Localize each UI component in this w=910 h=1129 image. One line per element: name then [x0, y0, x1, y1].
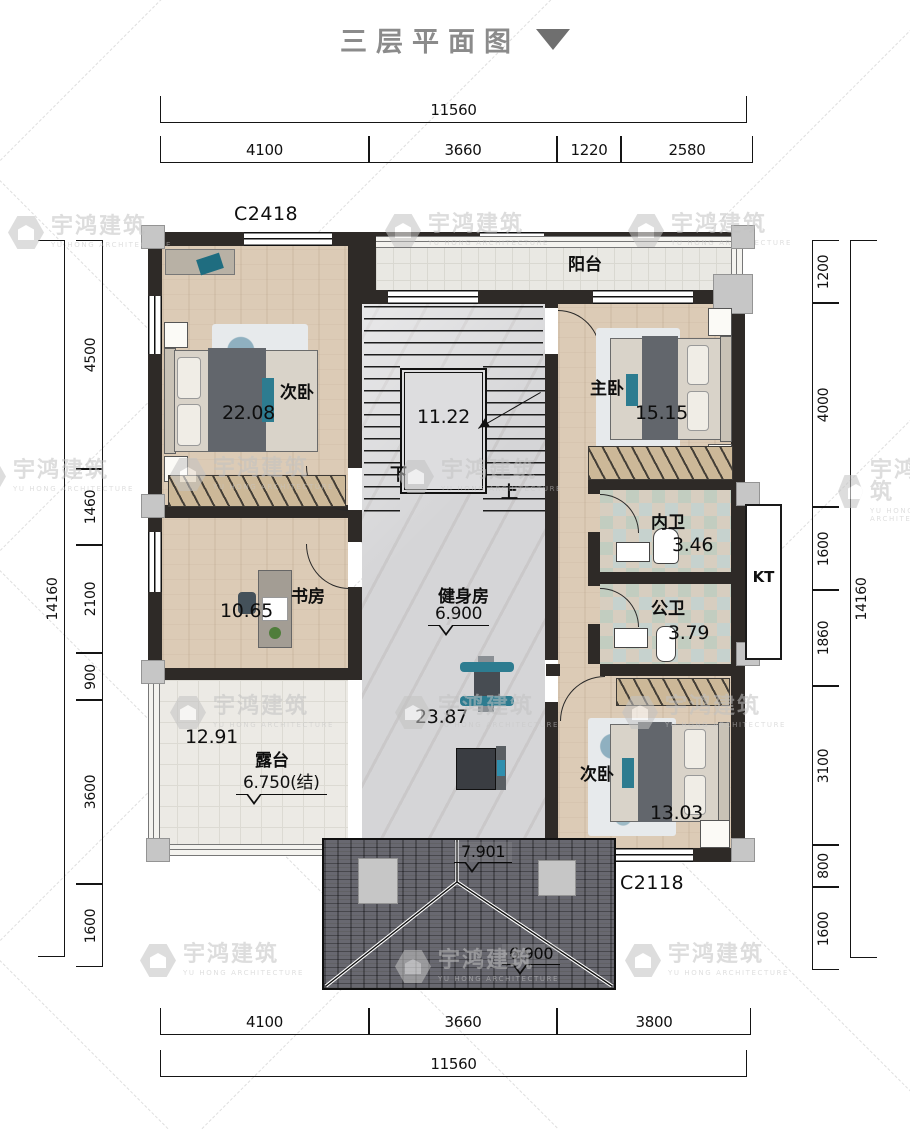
dim-segment: 3660 [369, 136, 557, 163]
wall [348, 510, 362, 542]
wall [348, 290, 388, 304]
balcony-floor [376, 246, 731, 290]
dim-segment: 1600 [812, 507, 839, 590]
column-pad [731, 225, 755, 249]
dim-right-total: 14160 [850, 240, 877, 958]
window [593, 290, 693, 304]
nightstand [708, 308, 732, 336]
bath-inner-name: 内卫 [651, 508, 685, 533]
roof-elevation-lower: 6.900 [502, 944, 560, 983]
bedroom-se-area: 13.03 [650, 802, 703, 824]
dim-segment: 900 [76, 653, 103, 700]
bed-master [610, 336, 730, 440]
dim-segment: 3600 [76, 700, 103, 884]
treadmill [456, 746, 506, 790]
terrace-area: 12.91 [185, 726, 238, 748]
column-pad [731, 838, 755, 862]
dim-segment: 4500 [76, 240, 103, 469]
wardrobe [168, 475, 346, 507]
window-label-c2418: C2418 [234, 203, 298, 225]
wardrobe [616, 678, 730, 706]
dim-segment: 3100 [812, 686, 839, 845]
wall [600, 664, 745, 676]
watermark: 宇鸿建筑YU HONG ARCHITECTURE [0, 460, 134, 493]
chimney-pad [538, 860, 576, 896]
roof-elevation-upper: 7.901 [454, 842, 512, 881]
master-area: 15.15 [635, 402, 688, 424]
wall [588, 532, 600, 586]
dim-right-segments: 1200 4000 1600 1860 3100 800 1600 [812, 240, 839, 970]
bath-inner-area: 3.46 [672, 534, 713, 556]
gym-elevation-marker: 6.900 [428, 604, 489, 644]
wall [588, 624, 600, 664]
watermark: 宇鸿建筑YU HONG ARCHITECTURE [625, 944, 789, 977]
terrace-elevation-marker: 6.750(结) [236, 768, 327, 813]
wall [545, 354, 558, 660]
bedroom-nw-name: 次卧 [280, 378, 314, 403]
dim-segment: 2100 [76, 545, 103, 653]
dim-value: 11560 [161, 101, 746, 119]
bedroom-nw-area: 22.08 [222, 402, 275, 424]
wall [588, 572, 745, 584]
stair-void: 11.22 [400, 368, 487, 494]
wall [478, 290, 558, 304]
dim-segment: 1220 [557, 136, 621, 163]
wardrobe [588, 446, 733, 480]
bedroom-se-name: 次卧 [580, 760, 614, 785]
column-pad [141, 225, 165, 249]
title-text: 三层平面图 [340, 20, 520, 59]
yuhong-logo-icon [140, 944, 176, 977]
window [388, 290, 478, 304]
stair-treads [364, 306, 543, 366]
dim-segment: 4100 [160, 136, 369, 163]
terrace-railing [148, 680, 160, 850]
wall [588, 490, 600, 494]
dim-segment: 1200 [812, 240, 839, 303]
dim-segment: 1600 [76, 884, 103, 967]
dim-segment: 3800 [557, 1008, 751, 1035]
dim-left-total: 14160 [38, 240, 65, 957]
wall [731, 276, 745, 862]
stair-down-label: 下 [390, 460, 407, 485]
window-label-c2118: C2118 [620, 872, 684, 894]
dim-top-segments: 4100 3660 1220 2580 [160, 136, 753, 163]
wall [545, 702, 558, 848]
window-c2418 [244, 232, 332, 246]
wall [348, 246, 362, 468]
balcony-name: 阳台 [568, 250, 602, 275]
gym-area: 23.87 [415, 706, 468, 728]
terrace-floor [156, 680, 348, 846]
watermark: 宇鸿建筑YU HONG ARCHITECTURE [140, 944, 304, 977]
kt-shaft: KT [745, 504, 782, 660]
stair-up-label: 上 [501, 478, 518, 503]
stair-treads [364, 366, 400, 516]
dim-bottom-segments: 4100 3660 3800 [160, 1008, 751, 1035]
wall [348, 587, 362, 680]
wall [558, 290, 593, 304]
window [148, 296, 162, 354]
dim-segment: 800 [812, 845, 839, 887]
exercise-machine [452, 656, 522, 712]
column-pad [141, 494, 165, 518]
dim-top-total: 11560 [160, 96, 747, 123]
wall [148, 668, 348, 680]
study-area: 10.65 [220, 600, 273, 622]
roof: 7.901 6.900 [322, 838, 616, 990]
kt-label: KT [747, 568, 780, 586]
floor-plan: KT 11.22 下 上 [148, 232, 746, 870]
dim-segment: 4100 [160, 1008, 369, 1035]
yuhong-logo-icon [625, 944, 661, 977]
bath-public-name: 公卫 [651, 594, 685, 619]
title-arrow-icon [536, 29, 570, 50]
window [148, 532, 162, 592]
column-pad [141, 660, 165, 684]
dim-left-segments: 4500 1460 2100 900 3600 1600 [76, 240, 103, 967]
column-pad [736, 482, 760, 506]
dim-segment: 1460 [76, 469, 103, 545]
drawing-title: 三层平面图 [0, 20, 910, 59]
wall [362, 246, 376, 290]
nightstand [164, 322, 188, 348]
balcony-railing [376, 236, 731, 248]
dim-segment: 2580 [621, 136, 753, 163]
sink [614, 628, 648, 648]
master-name: 主卧 [590, 374, 624, 399]
column-pad [146, 838, 170, 862]
chimney-pad [358, 858, 398, 904]
wall [546, 664, 560, 676]
yuhong-logo-icon [0, 460, 6, 493]
dim-bottom-total: 11560 [160, 1050, 747, 1077]
dim-segment: 1860 [812, 590, 839, 686]
dim-segment: 3660 [369, 1008, 557, 1035]
floorplan-sheet: 三层平面图 11560 4100 3660 1220 2580 4100 366… [0, 0, 910, 1129]
bath-public-area: 3.79 [668, 622, 709, 644]
nightstand [700, 820, 730, 848]
dim-segment: 4000 [812, 303, 839, 507]
dim-segment: 1600 [812, 887, 839, 970]
study-name: 书房 [291, 582, 325, 607]
sink [616, 542, 650, 562]
